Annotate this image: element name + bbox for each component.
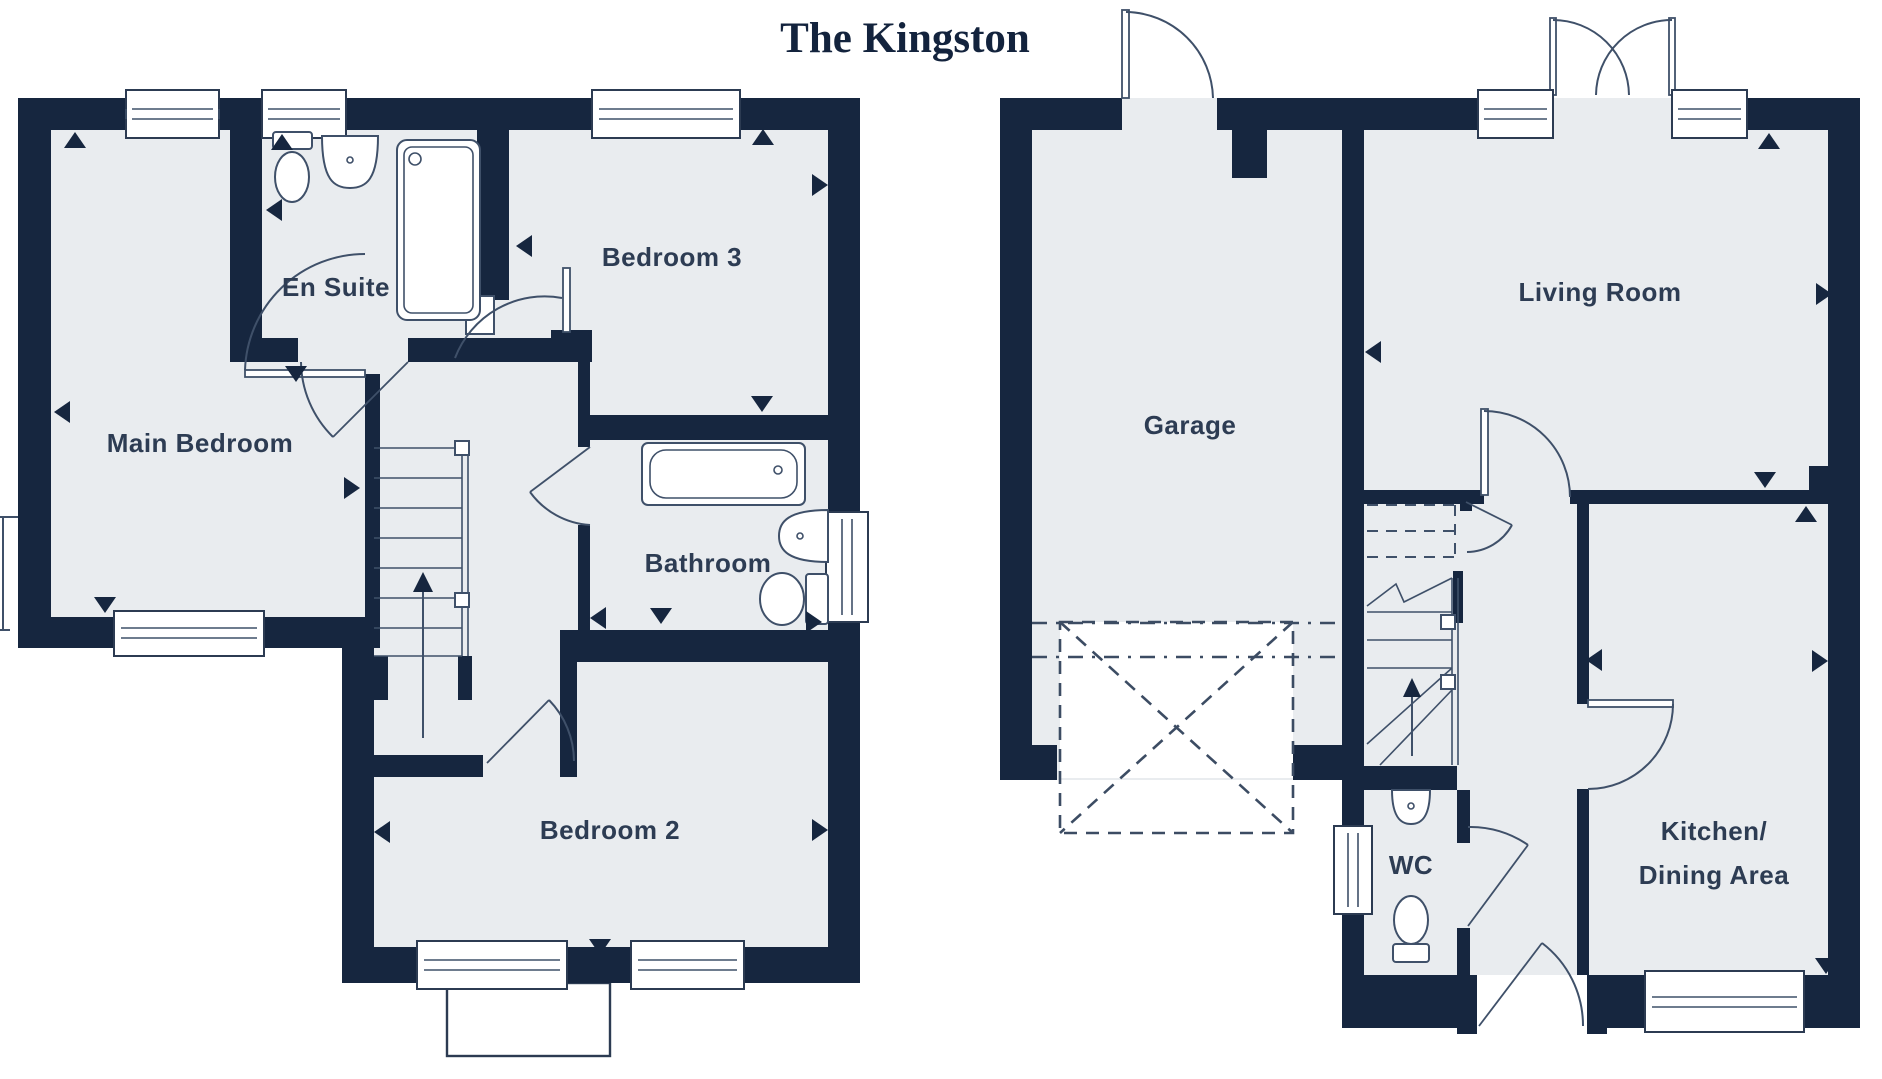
window-icon [1334,826,1372,914]
room-label-kitchen-line2: Dining Area [1639,860,1789,890]
window-icon [1478,90,1553,138]
shower-icon [397,140,480,320]
room-label-en-suite: En Suite [282,272,390,302]
floor-plan-first-floor: Main Bedroom En Suite Bedroom 3 Bathroom… [0,90,868,1056]
room-label-living-room: Living Room [1519,277,1682,307]
floorplan-drawing: The Kingston [0,0,1882,1079]
floorplan-page: The Kingston [0,0,1882,1079]
entrance-recess [1477,975,1587,1034]
ensuite-basin-icon [322,136,378,188]
neighbour-boundary-lines [0,517,18,630]
bath-icon [642,443,805,505]
window-icon [126,90,219,138]
room-label-bedroom-3: Bedroom 3 [602,242,742,272]
window-icon [262,90,346,138]
door-swing-icon [1550,18,1629,95]
window-icon [592,90,740,138]
bay-canopy-outline [447,983,610,1056]
door-swing-icon [1122,10,1213,98]
page-title-main: The Kingston [780,15,1030,62]
wc-toilet-icon [1393,896,1429,962]
garage-door-area [1060,622,1293,778]
window-icon [826,512,868,622]
window-icon [1645,971,1804,1032]
bathroom-toilet-icon [760,573,828,625]
window-icon [114,611,264,656]
window-icon [631,941,744,989]
floor-plan-ground-floor: Garage Living Room WC Kitchen/ Dining Ar… [1000,10,1860,1034]
room-label-wc: WC [1389,850,1433,880]
window-icon [1672,90,1747,138]
room-label-bathroom: Bathroom [645,548,772,578]
door-swing-icon [1596,18,1675,95]
room-label-garage: Garage [1144,410,1237,440]
room-label-bedroom-2: Bedroom 2 [540,815,680,845]
window-icon [417,941,567,989]
room-label-main-bedroom: Main Bedroom [107,428,294,458]
room-label-kitchen-line1: Kitchen/ [1661,816,1768,846]
